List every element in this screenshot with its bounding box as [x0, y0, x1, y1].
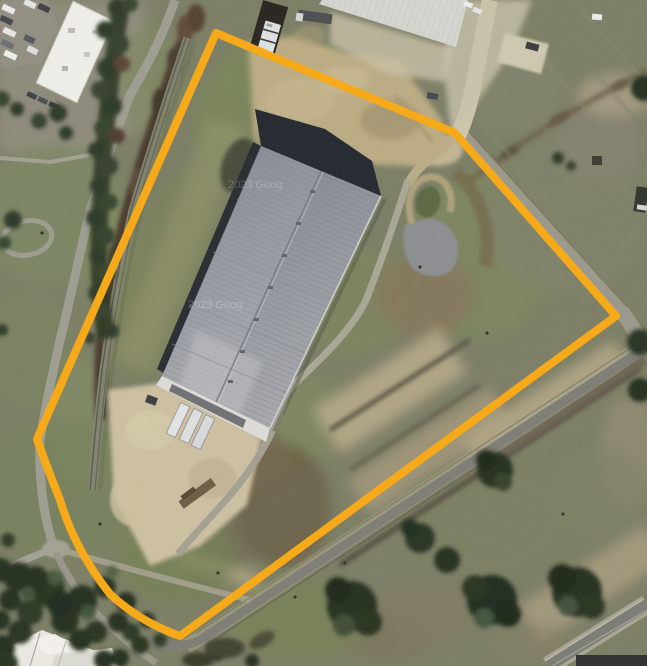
svg-text:2023 Goog: 2023 Goog [228, 179, 282, 191]
svg-text:2023 Goog: 2023 Goog [188, 299, 242, 311]
